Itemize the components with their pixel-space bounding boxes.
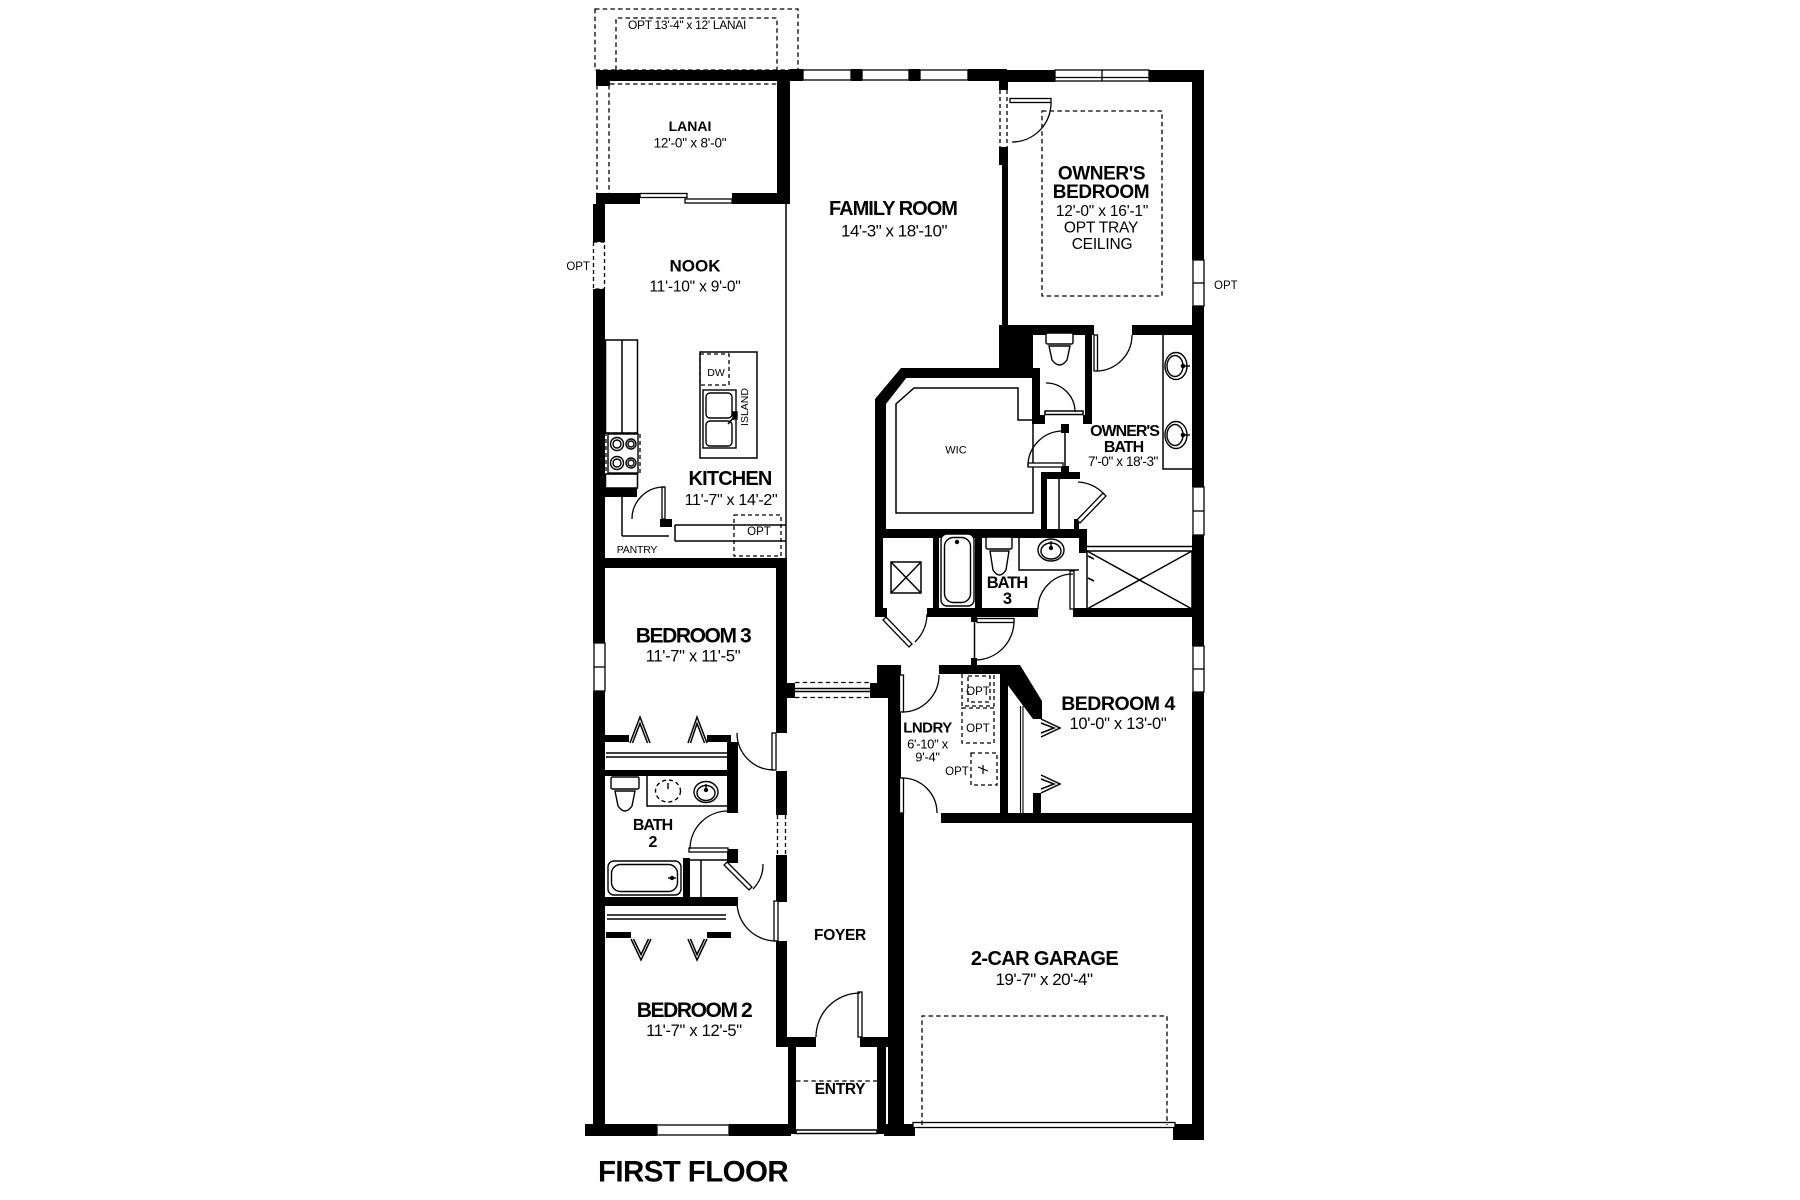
svg-text:12'-0" x 16'-1": 12'-0" x 16'-1" xyxy=(1056,203,1148,220)
svg-text:ISLAND: ISLAND xyxy=(739,388,751,426)
svg-text:BATH: BATH xyxy=(633,817,673,834)
svg-text:OPT: OPT xyxy=(1214,280,1238,292)
svg-text:WIC: WIC xyxy=(945,445,966,457)
svg-text:BEDROOM: BEDROOM xyxy=(1053,182,1149,203)
svg-text:LNDRY: LNDRY xyxy=(903,720,952,737)
svg-text:BEDROOM 4: BEDROOM 4 xyxy=(1061,693,1175,715)
svg-text:OPT: OPT xyxy=(945,766,969,778)
svg-text:11'-7" x 12'-5": 11'-7" x 12'-5" xyxy=(646,1022,742,1040)
svg-text:2: 2 xyxy=(649,834,658,851)
svg-text:OPT: OPT xyxy=(966,723,990,735)
svg-text:OPT: OPT xyxy=(966,686,990,698)
svg-text:3: 3 xyxy=(1003,590,1012,608)
svg-text:BEDROOM 3: BEDROOM 3 xyxy=(636,625,751,648)
svg-text:FAMILY ROOM: FAMILY ROOM xyxy=(829,198,957,220)
svg-text:CEILING: CEILING xyxy=(1072,236,1133,253)
svg-text:12'-0" x 8'-0": 12'-0" x 8'-0" xyxy=(654,136,727,151)
svg-text:NOOK: NOOK xyxy=(670,257,722,276)
svg-text:FOYER: FOYER xyxy=(814,927,866,944)
svg-text:11'-7" x 14'-2": 11'-7" x 14'-2" xyxy=(685,492,778,509)
svg-text:BEDROOM 2: BEDROOM 2 xyxy=(637,999,752,1022)
svg-text:10'-0" x 13'-0": 10'-0" x 13'-0" xyxy=(1070,715,1167,733)
svg-text:LANAI: LANAI xyxy=(669,118,712,134)
svg-text:OPT 13'-4" x 12' LANAI: OPT 13'-4" x 12' LANAI xyxy=(628,18,746,32)
svg-text:OPT: OPT xyxy=(747,526,771,538)
svg-text:FIRST FLOOR: FIRST FLOOR xyxy=(598,1156,788,1189)
svg-text:14'-3" x 18'-10": 14'-3" x 18'-10" xyxy=(841,222,947,241)
svg-text:7'-0" x 18'-3": 7'-0" x 18'-3" xyxy=(1088,454,1159,469)
svg-text:9'-4": 9'-4" xyxy=(915,750,940,765)
svg-text:DW: DW xyxy=(707,367,725,379)
svg-text:2-CAR GARAGE: 2-CAR GARAGE xyxy=(971,948,1119,970)
svg-text:OPT: OPT xyxy=(566,261,590,273)
svg-text:ENTRY: ENTRY xyxy=(815,1081,866,1098)
svg-text:19'-7" x 20'-4": 19'-7" x 20'-4" xyxy=(995,970,1093,989)
svg-text:OWNER'S: OWNER'S xyxy=(1090,423,1160,440)
svg-text:OPT TRAY: OPT TRAY xyxy=(1064,220,1138,237)
svg-text:11'-7" x 11'-5": 11'-7" x 11'-5" xyxy=(646,648,741,666)
svg-text:11'-10" x 9'-0": 11'-10" x 9'-0" xyxy=(649,279,740,296)
svg-text:PANTRY: PANTRY xyxy=(617,544,658,556)
svg-text:KITCHEN: KITCHEN xyxy=(689,468,772,490)
